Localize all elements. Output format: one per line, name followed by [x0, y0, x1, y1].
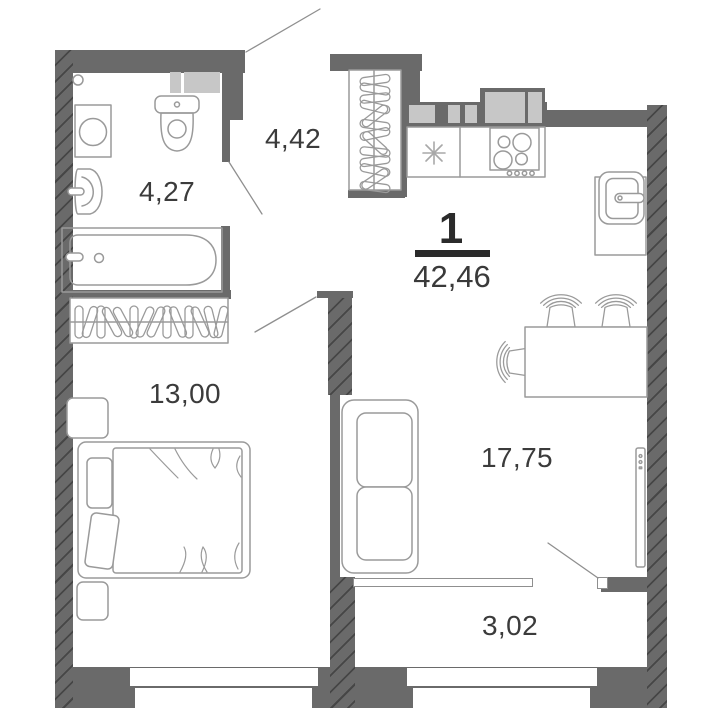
room-label-bathroom: 4,27 — [139, 176, 195, 208]
room-label-bedroom: 13,00 — [149, 378, 221, 410]
furniture-layer — [0, 0, 720, 720]
stove-icon — [490, 128, 539, 176]
room-label-living-kitchen: 17,75 — [481, 442, 553, 474]
room-label-hallway: 4,42 — [265, 123, 321, 155]
tv-icon — [636, 448, 645, 567]
floor-plan: 4,27 4,42 13,00 17,75 3,02 1 42,46 — [0, 0, 720, 720]
bathroom-door-swing — [229, 162, 262, 214]
room-label-balcony: 3,02 — [482, 610, 538, 642]
apartment-divider-line — [415, 250, 490, 257]
bathtub-icon — [62, 228, 222, 292]
wardrobe-hangers-icon — [349, 70, 401, 193]
entrance-door-swing — [246, 9, 320, 52]
toilet-icon — [155, 96, 199, 151]
bed-icon — [78, 442, 250, 578]
bedroom-door-swing — [255, 297, 316, 332]
apartment-number: 1 — [439, 204, 463, 254]
fridge-icon — [595, 172, 646, 255]
balcony-door-swing — [548, 543, 598, 578]
nightstand-icon — [67, 398, 108, 438]
sofa-icon — [342, 400, 418, 573]
chair-icon — [596, 295, 637, 327]
floor-drain-icon — [73, 75, 83, 85]
kitchen-sink-icon — [423, 142, 445, 164]
washing-machine-icon — [75, 105, 111, 157]
apartment-total-area: 42,46 — [413, 259, 491, 295]
chair-icon — [497, 342, 529, 383]
wardrobe-hangers-icon — [70, 298, 229, 343]
washbasin-icon — [68, 169, 102, 214]
chair-icon — [541, 295, 582, 327]
nightstand-icon — [77, 582, 108, 620]
dining-table-icon — [525, 327, 647, 397]
